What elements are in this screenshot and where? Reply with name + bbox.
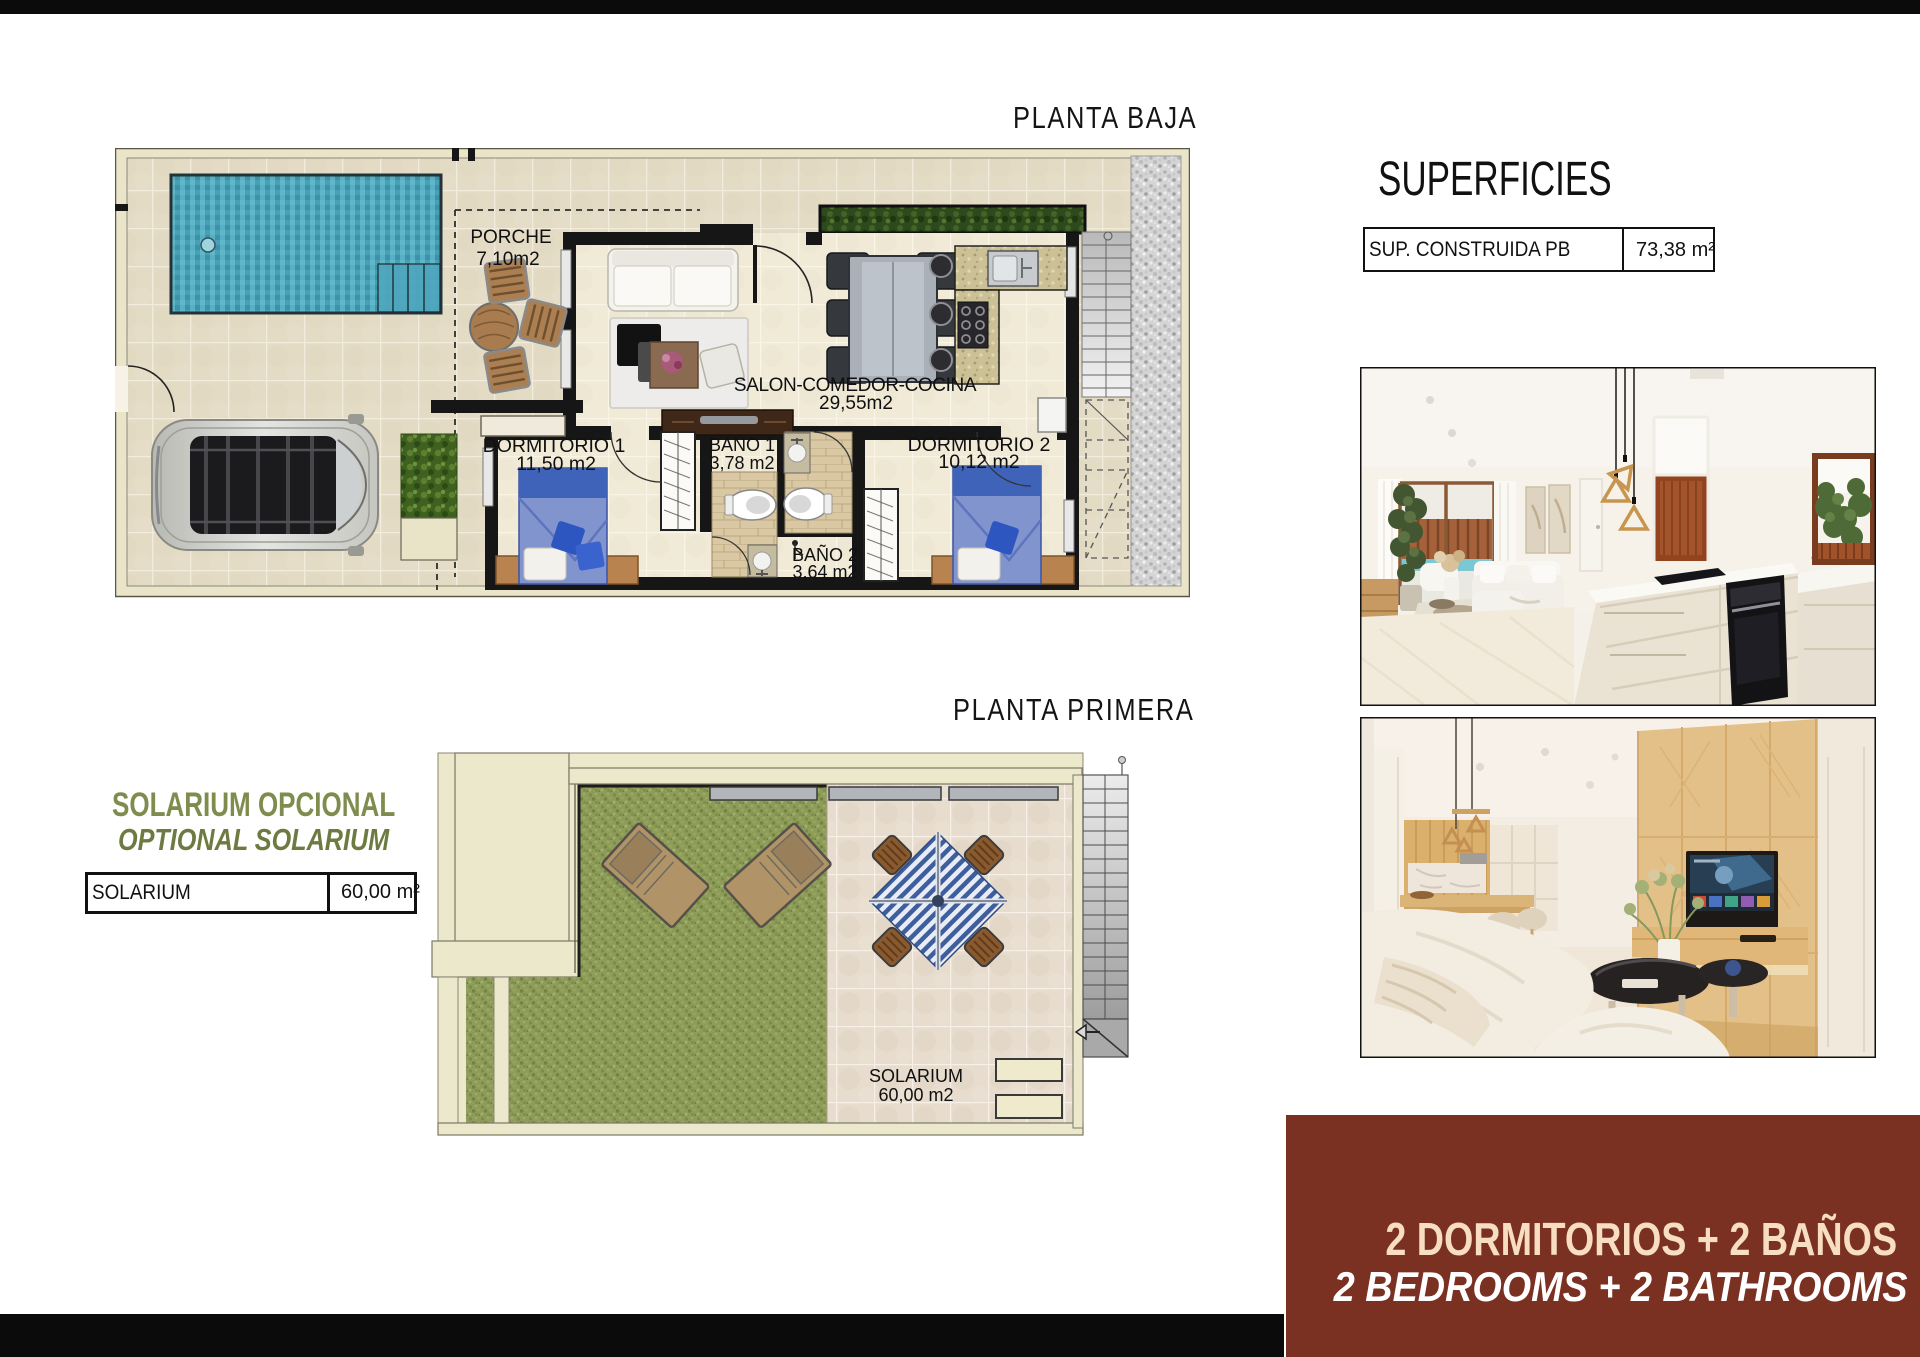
svg-text:SOLARIUM: SOLARIUM	[869, 1066, 963, 1086]
svg-text:29,55m2: 29,55m2	[819, 393, 893, 414]
svg-text:7,10m2: 7,10m2	[476, 249, 539, 270]
svg-text:PORCHE: PORCHE	[470, 227, 551, 248]
svg-text:11,50 m2: 11,50 m2	[516, 453, 596, 475]
svg-text:10,12 m2: 10,12 m2	[938, 451, 1019, 473]
svg-text:3,64 m2: 3,64 m2	[792, 562, 857, 582]
svg-text:3,78 m2: 3,78 m2	[709, 453, 774, 473]
svg-text:BANO 1: BANO 1	[709, 435, 775, 455]
svg-text:60,00 m2: 60,00 m2	[878, 1085, 953, 1105]
